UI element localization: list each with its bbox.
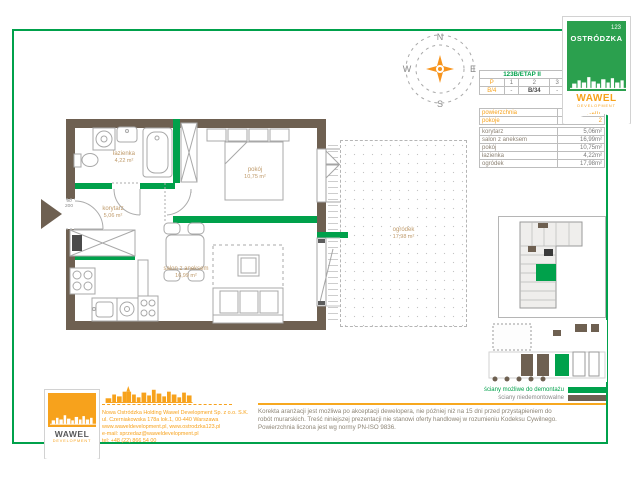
legend-permanent-label: ściany niedemontowalne: [498, 395, 564, 401]
kitchen-hob: [70, 268, 95, 294]
disclaimer-text: Korekta aranżacji jest możliwa po akcept…: [258, 408, 608, 432]
footer-brand: WAWEL: [45, 429, 99, 439]
area-row-label: korytarz: [480, 128, 558, 136]
unit-1: -: [504, 87, 519, 95]
tall-cabinet: [138, 260, 148, 296]
floor-2: 2: [519, 79, 550, 87]
kitchen-fan: [117, 298, 138, 321]
compass-n: N: [437, 32, 444, 42]
area-row-label: łazienka: [480, 152, 558, 160]
building-floor-plan-map: [498, 216, 606, 318]
site-plan-map: [487, 320, 607, 382]
badge-brand-sub: DEVELOPMENT: [563, 104, 630, 108]
room-label-salon: salon z aneksem 16,99 m²: [156, 266, 216, 280]
floor-plan-card: ogródek 17,98 m²: [0, 0, 640, 480]
badge-brand: WAWEL: [563, 93, 630, 104]
company-name: Nowa Ostródzka Holding Wawel Development…: [102, 410, 272, 417]
room-label-lazienka: łazienka 4,22 m²: [98, 151, 150, 165]
area-row-value: 4,22m²: [558, 152, 605, 160]
window-pokoj: [317, 149, 340, 202]
company-websites[interactable]: www.waweldevelopment.pl, www.ostrodzka12…: [102, 424, 272, 431]
skyline-icon: [50, 414, 96, 425]
area-row-label: salon z aneksem: [480, 136, 558, 144]
area-row-value: 10,75m²: [558, 144, 605, 152]
area-row-value: 16,99m²: [558, 136, 605, 144]
legend-demountable-label: ściany możliwe do demontażu: [484, 387, 564, 393]
wardrobe: [181, 123, 197, 182]
compass-w: W: [403, 64, 412, 74]
hall-cabinet: [70, 230, 135, 256]
highlighted-building: [555, 354, 569, 376]
unit-2: B/34: [519, 87, 550, 95]
kitchen-stove: [138, 296, 158, 321]
kitchen-sink: [92, 298, 117, 321]
badge-green-block: 123 OSTRÓDZKA: [567, 21, 626, 91]
footer-separator: [258, 403, 606, 405]
room-label-pokoj: pokój 10,75 m²: [228, 167, 282, 181]
compass-rose: N E S W: [397, 26, 483, 112]
city-skyline-icon: [102, 386, 232, 405]
toilet: [74, 154, 98, 168]
unit-table: 123B/ETAP II P 1 2 3 B/4 - B/34 -: [479, 70, 565, 95]
company-email[interactable]: e-mail: sprzedaz@waweldevelopment.pl: [102, 431, 272, 438]
highlighted-unit: [536, 264, 556, 281]
apartment-floor-plan: ogródek 17,98 m²: [40, 103, 480, 351]
room-areas-table: korytarz 5,06m² salon z aneksem 16,99m² …: [479, 127, 605, 168]
walls-legend: ściany możliwe do demontażu ściany niede…: [420, 386, 606, 402]
compass-s: S: [437, 99, 443, 109]
unit-table-title: 123B/ETAP II: [480, 71, 565, 79]
glass-door-salon: [317, 238, 333, 306]
plan-drawing: [40, 103, 480, 351]
wawel-footer-badge: WAWEL DEVELOPMENT: [44, 389, 100, 459]
legend-green-swatch: [568, 387, 606, 393]
area-row-value: 5,06m²: [558, 128, 605, 136]
summary-label: powierzchnia: [480, 109, 558, 117]
footer-badge-skyline-block: [48, 393, 96, 427]
bed: [207, 129, 289, 200]
bathroom-sink: [117, 127, 137, 142]
coffee-table: [238, 255, 259, 276]
washing-machine: [93, 128, 115, 150]
room-label-korytarz: korytarz 5,06 m²: [86, 206, 140, 220]
badge-number: 123: [611, 25, 621, 31]
area-row-label: ogródek: [480, 160, 558, 168]
badge-street: OSTRÓDZKA: [567, 34, 626, 43]
entrance-arrow-icon: [41, 199, 62, 229]
area-row-label: pokój: [480, 144, 558, 152]
legend-brown-swatch: [568, 395, 606, 401]
company-phone: tel: +48 (22) 866 54 00: [102, 438, 272, 445]
skyline-icon: [570, 76, 628, 89]
floor-p: P: [480, 79, 505, 87]
footer-brand-sub: DEVELOPMENT: [45, 439, 99, 443]
compass-e: E: [470, 64, 476, 74]
ostrodzka-badge: 123 OSTRÓDZKA WAWEL DEVELOPMENT: [562, 16, 631, 124]
area-row-value: 17,98m²: [558, 160, 605, 168]
contact-block: Nowa Ostródzka Holding Wawel Development…: [102, 386, 272, 445]
company-address: ul. Czerniakowska 178a lok.1, 00-440 War…: [102, 417, 272, 424]
sofa: [213, 288, 283, 323]
unit-current: B/4: [480, 87, 505, 95]
entrance-door-size: 90 200: [65, 199, 73, 209]
floor-1: 1: [504, 79, 519, 87]
rooms-count-label: pokoje: [480, 117, 558, 125]
